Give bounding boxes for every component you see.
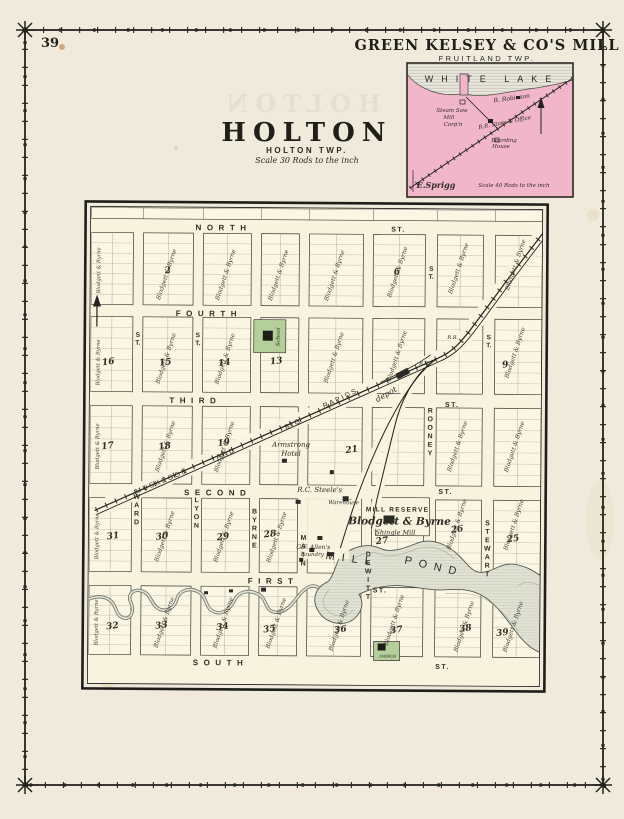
street-label-st: ST. [486,334,491,349]
inset-label: Mill [443,115,455,121]
inset-subtitle: FRUITLAND TWP. [439,54,536,63]
street-letter: W [365,568,372,575]
street-label-st: ST. [373,587,388,594]
block-number: 27 [374,536,389,548]
feature-label: Foundry [300,552,325,558]
feature-label: Shingle Mill [375,528,415,536]
street-label-third: THIRD [169,396,221,405]
street-letter: O [427,425,433,432]
feature-label: Warehouse [328,500,360,506]
street-letter: S [487,334,492,341]
street-letter: R [485,563,490,570]
map-scale: Scale 30 Rods to the inch [255,156,358,165]
street-letter: B [252,509,257,516]
street-label-byrne: BYRNE [252,509,257,550]
street-letter: R [252,526,257,533]
feature-label: Hotel [280,450,301,458]
street-letter: S [429,266,434,273]
street-label-st: ST. [445,402,460,409]
street-letter: R [134,511,139,518]
street-label-st: ST. [195,332,200,347]
owner-label: Blodgett & Byrne [94,513,100,560]
block-number: 16 [101,357,115,369]
street-letter: N [301,560,306,567]
street-label-fourth: FOURTH [176,309,242,318]
street-label-first: FIRST [248,577,299,586]
church-label: CHURCH [379,653,396,658]
street-label-st: ST. [438,489,453,496]
street-letter: S [196,332,201,339]
street-label-st: ST. [391,227,406,234]
map-subtitle: HOLTON TWP. [266,146,348,155]
feature-label: Blodgett & Byrne [347,515,451,528]
feature-label: G.F. Allen's [296,544,330,551]
block-number: 21 [344,444,359,456]
feature-label: R.R. [446,335,458,341]
block-number: 17 [101,441,115,453]
street-letter: A [485,554,490,561]
street-letter: N [194,523,199,530]
owner-label: Blodgett & Byrne [95,339,101,386]
inset-title: GREEN KELSEY & CO'S MILL [354,37,619,54]
street-label-st: ST. [435,664,450,671]
school-label: School [276,327,282,346]
street-label-second: SECOND [184,488,251,497]
street-letter: T. [135,340,140,347]
map-title: HOLTON [221,118,392,148]
street-letter: M [300,535,306,542]
atlas-page: HOLTON 39 [0,0,624,819]
street-label-st: ST. [429,266,434,281]
street-label-south: SOUTH [193,658,249,667]
main-map: School CHURCH NORTHFOURTHTHIRDSECONDFIRS… [78,201,560,691]
lake-label: WHITE LAKE [425,74,560,84]
street-label-north: NORTH [196,223,252,232]
block-number: 31 [106,531,120,543]
street-letter: T. [486,342,491,349]
inset-label: Steam Saw [436,108,468,114]
inset-label: House [491,144,510,150]
street-letter: N [428,433,433,440]
feature-label: MILL RESERVE [366,506,429,513]
school-block: School [254,320,286,353]
block-number: 13 [269,356,283,368]
feature-label: R.R. [418,361,430,367]
street-letter: Y [194,506,199,513]
street-letter: A [134,502,139,509]
street-letter: E [428,442,433,449]
street-letter: I [367,577,369,584]
feature-label: R.C. Steele's [296,486,342,494]
street-letter: Y [428,450,433,457]
street-letter: E [485,537,490,544]
street-label-st: ST. [135,332,140,347]
street-letter: O [194,514,200,521]
street-letter: R [428,408,433,415]
inset-label: Scale 40 Rods to the inch [478,183,550,189]
street-letter: N [252,534,257,541]
inset-label: E.Sprigg [416,180,456,190]
street-letter: O [427,416,433,423]
street-letter: S [485,520,490,527]
street-letter: E [252,543,257,550]
street-letter: S [136,332,141,339]
street-letter: W [484,546,491,553]
street-letter: T. [195,340,200,347]
street-letter: D [134,519,139,526]
feature-label: Armstrong [271,441,311,449]
inset-label: Corp'n [444,122,463,128]
owner-label: Blodgett & Byrne [94,599,100,646]
holton-plat-map: HOLTON 39 [0,0,624,819]
bleed-through-ghost-text: HOLTON [219,89,380,118]
owner-label: Blodgett & Byrne [96,247,102,294]
street-letter: T. [429,274,434,281]
block-number: 32 [106,621,120,633]
owner-label: Blodgett & Byrne [95,423,101,470]
street-letter: Y [252,517,257,524]
page-number: 39 [41,36,59,51]
